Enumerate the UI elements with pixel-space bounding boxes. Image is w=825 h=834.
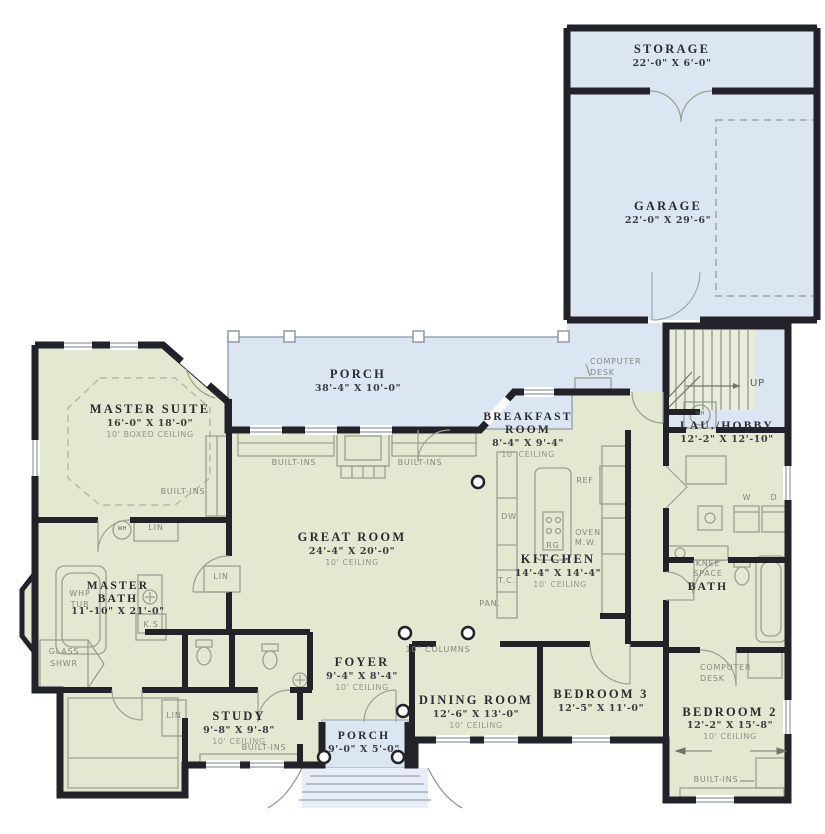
rear-porch-name: PORCH bbox=[330, 368, 386, 382]
garage-dims: 22'-0" X 29'-6" bbox=[625, 216, 711, 226]
foyer-name: FOYER bbox=[335, 656, 390, 670]
wh-label-master: WH bbox=[118, 527, 127, 533]
bedroom2-dims: 12'-2" X 15'-8" bbox=[687, 721, 773, 731]
breakfast-name-2: ROOM bbox=[505, 424, 551, 437]
up-label: UP bbox=[750, 378, 765, 389]
knee-label-1: KNEE bbox=[696, 560, 721, 569]
whp-label-1: WHP bbox=[69, 590, 90, 599]
computer-desk-bed2-1: COMPUTER bbox=[700, 664, 751, 673]
kitchen-ceiling: 10' CEILING bbox=[533, 581, 587, 590]
breakfast-dims: 8'-4" X 9'-4" bbox=[492, 439, 564, 449]
powder-sink bbox=[293, 673, 307, 687]
master-suite-name: MASTER SUITE bbox=[90, 403, 211, 417]
computer-desk-rear-2: DESK bbox=[590, 369, 615, 378]
rg-label: RG bbox=[546, 542, 559, 551]
dining-dims: 12'-6" X 13'-0" bbox=[433, 710, 519, 720]
garage-floor bbox=[567, 28, 817, 320]
columns-label: 10" COLUMNS bbox=[406, 646, 471, 655]
built-ins-master: BUILT-INS bbox=[161, 488, 206, 497]
storage-name: STORAGE bbox=[634, 43, 710, 57]
built-ins-great-right: BUILT-INS bbox=[398, 459, 443, 468]
whp-label-2: TUB bbox=[71, 601, 90, 610]
rear-porch-dims: 38'-4" X 10'-0" bbox=[315, 384, 401, 394]
bedroom2-ceiling: 10' CEILING bbox=[703, 733, 757, 742]
bedroom3-dims: 12'-5" X 11'-0" bbox=[558, 704, 644, 714]
great-room-name: GREAT ROOM bbox=[298, 531, 407, 545]
bedroom3-name: BEDROOM 3 bbox=[553, 688, 648, 702]
mw-label: M.W. bbox=[575, 539, 597, 548]
master-suite-dims: 16'-0" X 18'-0" bbox=[107, 419, 193, 429]
glass-label-1: GLASS bbox=[49, 648, 79, 657]
computer-desk-rear-1: COMPUTER bbox=[590, 358, 641, 367]
breakfast-name-1: BREAKFAST bbox=[483, 411, 572, 424]
pan-label: PAN. bbox=[479, 600, 501, 609]
great-room-dims: 24'-4" X 20'-0" bbox=[309, 547, 395, 557]
built-ins-study: BUILT-INS bbox=[242, 744, 287, 753]
lau-hobby-dims: 12'-2" X 12'-10" bbox=[680, 435, 773, 445]
bath-name: BATH bbox=[688, 581, 729, 594]
great-room-ceiling: 10' CEILING bbox=[325, 559, 379, 568]
breakfast-ceiling: 10' CEILING bbox=[501, 451, 555, 460]
glass-label-2: SHWR bbox=[50, 660, 78, 669]
master-bath-name-1: MASTER bbox=[87, 580, 149, 593]
lin-hall: LIN bbox=[213, 573, 228, 582]
study-name: STUDY bbox=[212, 710, 265, 724]
knee-label-2: SPACE bbox=[693, 570, 722, 579]
kitchen-name: KITCHEN bbox=[521, 553, 595, 567]
lin-study: LIN bbox=[166, 712, 181, 721]
dining-name: DINING ROOM bbox=[419, 694, 533, 708]
front-steps bbox=[302, 768, 428, 808]
master-suite-ceiling: 10' BOXED CEILING bbox=[106, 431, 194, 440]
front-porch-name: PORCH bbox=[338, 730, 391, 743]
tc-label: T.C. bbox=[498, 577, 516, 586]
washer-label: W bbox=[743, 494, 752, 503]
dw-label: DW bbox=[501, 513, 517, 522]
kitchen-dims: 14'-4" X 14'-4" bbox=[515, 569, 601, 579]
oven-label: OVEN bbox=[575, 529, 601, 538]
storage-dims: 22'-0" X 6'-0" bbox=[632, 59, 711, 69]
foyer-ceiling: 10' CEILING bbox=[335, 684, 389, 693]
study-dims: 9'-8" X 9'-8" bbox=[203, 726, 275, 736]
lau-hobby-name: LAU./HOBBY bbox=[680, 420, 774, 433]
dryer-label: D bbox=[771, 494, 778, 503]
ks-label: K.S bbox=[143, 621, 158, 630]
computer-desk-bed2-2: DESK bbox=[700, 675, 725, 684]
master-bath-name-2: BATH bbox=[98, 593, 139, 606]
built-ins-bedroom2: BUILT-INS bbox=[694, 776, 739, 785]
floor-plan: STORAGE 22'-0" X 6'-0" GARAGE 22'-0" X 2… bbox=[0, 0, 825, 834]
foyer-dims: 9'-4" X 8'-4" bbox=[326, 672, 398, 682]
dining-ceiling: 10' CEILING bbox=[449, 722, 503, 731]
lin-master-bath: LIN bbox=[148, 524, 163, 533]
ref-label: REF bbox=[576, 477, 594, 486]
front-porch-dims: 9'-0" X 5'-0" bbox=[328, 745, 400, 755]
built-ins-great-left: BUILT-INS bbox=[272, 459, 317, 468]
garage-name: GARAGE bbox=[634, 200, 702, 214]
bedroom2-name: BEDROOM 2 bbox=[682, 706, 777, 720]
wh-label-lau: WH bbox=[696, 412, 705, 418]
